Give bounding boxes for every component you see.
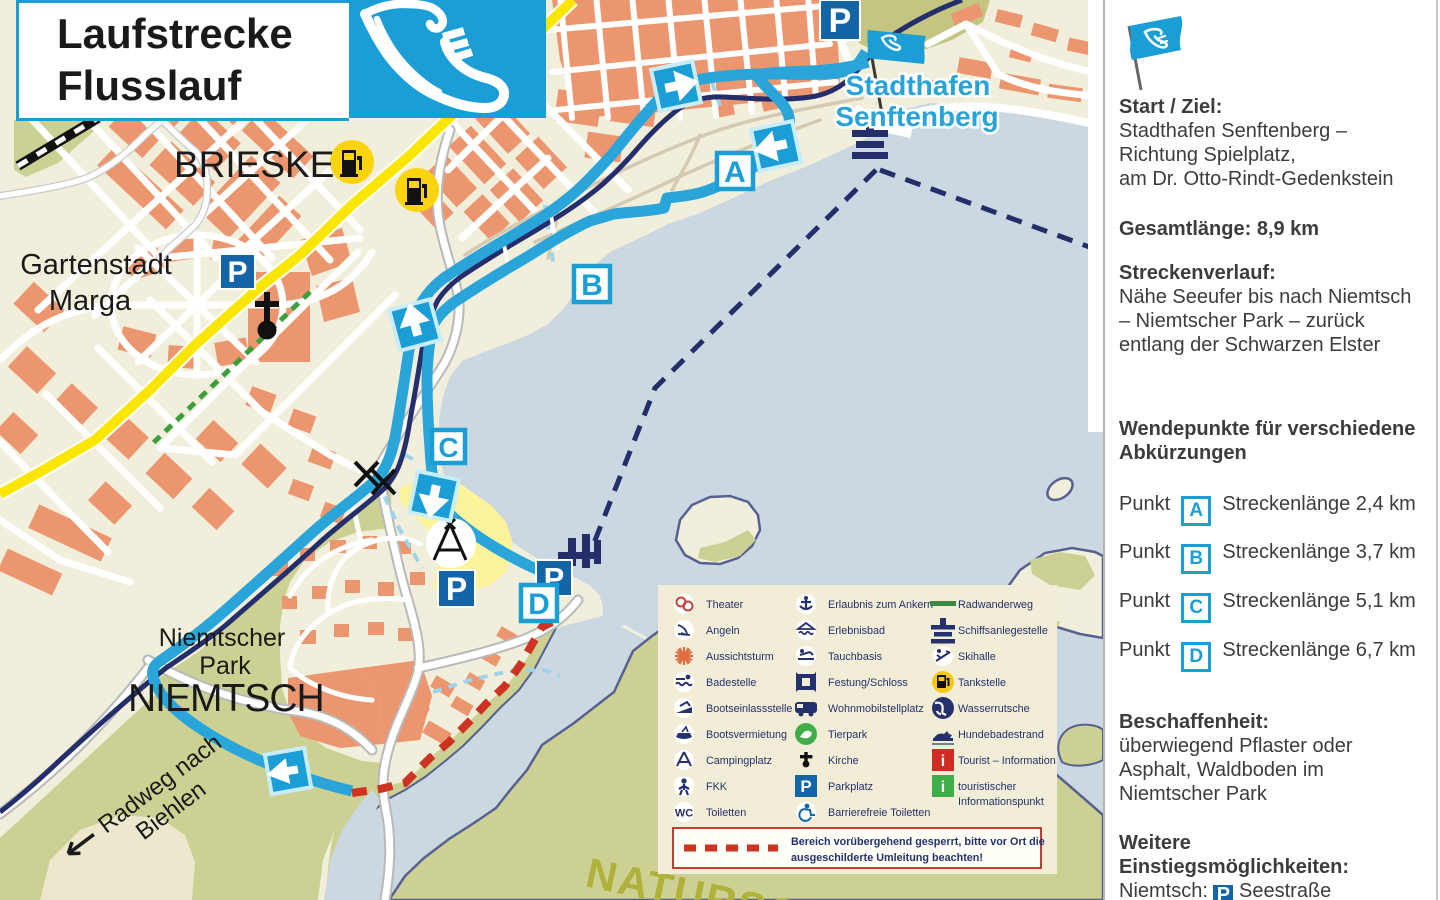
svg-text:Skihalle: Skihalle <box>958 651 996 663</box>
svg-text:Campingplatz: Campingplatz <box>706 755 772 767</box>
svg-text:Erlaubnis zum Ankern: Erlaubnis zum Ankern <box>828 599 933 611</box>
svg-text:BRIESKE: BRIESKE <box>174 144 334 185</box>
svg-text:Theater: Theater <box>706 599 744 611</box>
svg-text:Badestelle: Badestelle <box>706 677 756 689</box>
svg-text:ausgeschilderte Umleitung beac: ausgeschilderte Umleitung beachten! <box>791 852 983 864</box>
svg-text:Bereich vorübergehend gesperrt: Bereich vorübergehend gesperrt, bitte vo… <box>791 836 1045 848</box>
svg-text:Senftenberg: Senftenberg <box>835 101 998 132</box>
svg-text:Tankstelle: Tankstelle <box>958 677 1006 689</box>
svg-text:Park: Park <box>199 652 251 680</box>
svg-text:Gartenstadt: Gartenstadt <box>20 249 172 281</box>
svg-text:Informationspunkt: Informationspunkt <box>958 796 1044 808</box>
svg-text:Bootseinlassstelle: Bootseinlassstelle <box>706 703 792 715</box>
svg-text:Niemtscher: Niemtscher <box>159 624 285 652</box>
svg-text:WC: WC <box>675 808 693 820</box>
svg-text:P: P <box>227 256 247 289</box>
svg-text:Erlebnisbad: Erlebnisbad <box>828 625 885 637</box>
svg-text:Aussichtsturm: Aussichtsturm <box>706 651 774 663</box>
svg-text:A: A <box>724 156 746 189</box>
svg-text:Tauchbasis: Tauchbasis <box>828 651 883 663</box>
svg-text:NIEMTSCH: NIEMTSCH <box>128 677 324 720</box>
svg-text:Parkplatz: Parkplatz <box>828 781 873 793</box>
svg-text:C: C <box>438 432 458 463</box>
svg-text:P: P <box>800 777 811 796</box>
svg-text:Stadthafen: Stadthafen <box>846 70 991 101</box>
svg-text:Toiletten: Toiletten <box>706 807 746 819</box>
svg-text:touristischer: touristischer <box>958 781 1017 793</box>
svg-text:i: i <box>941 753 945 770</box>
svg-text:Hundebadestrand: Hundebadestrand <box>958 729 1044 741</box>
svg-text:Radwanderweg: Radwanderweg <box>958 599 1033 611</box>
svg-text:Tourist – Information: Tourist – Information <box>958 755 1056 767</box>
svg-text:P: P <box>829 2 852 40</box>
svg-text:Wohnmobilstellplatz: Wohnmobilstellplatz <box>828 703 924 715</box>
svg-text:Barrierefreie Toiletten: Barrierefreie Toiletten <box>828 807 930 819</box>
svg-text:i: i <box>941 779 945 796</box>
svg-text:Marga: Marga <box>49 285 132 317</box>
svg-text:Festung/Schloss: Festung/Schloss <box>828 677 908 689</box>
svg-text:FKK: FKK <box>706 781 728 793</box>
svg-text:Wasserrutsche: Wasserrutsche <box>958 703 1030 715</box>
svg-text:Kirche: Kirche <box>828 755 859 767</box>
svg-text:Angeln: Angeln <box>706 625 740 637</box>
svg-text:Bootsvermietung: Bootsvermietung <box>706 729 787 741</box>
svg-text:Schiffsanlegestelle: Schiffsanlegestelle <box>958 625 1048 637</box>
svg-text:Tierpark: Tierpark <box>828 729 868 741</box>
svg-text:D: D <box>528 588 550 621</box>
svg-text:B: B <box>581 269 603 302</box>
svg-text:P: P <box>446 571 467 607</box>
